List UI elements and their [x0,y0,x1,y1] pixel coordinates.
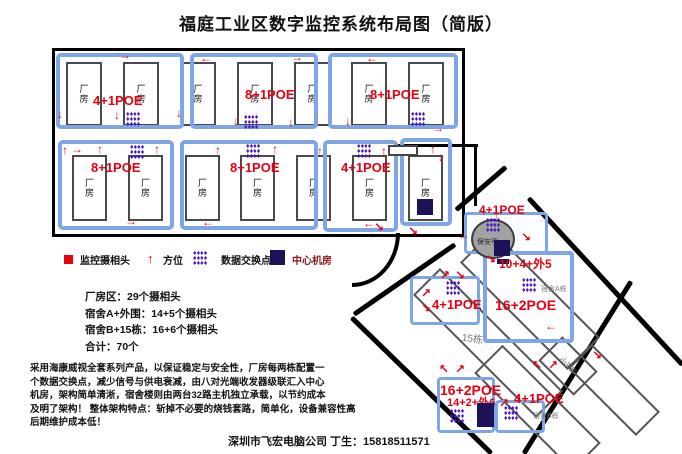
data-switch-icon: ♦♦♦♦ ♦♦♦♦ ♦♦♦♦ [450,409,464,424]
poe-label: 8+1POE [230,161,280,174]
data-switch-icon: ♦♦♦♦ ♦♦♦♦ ♦♦♦♦ [130,145,144,160]
direction-arrow-icon: ← [200,52,212,64]
description-line: 及明了架构！ 整体架构特点：斩掉不必要的烧钱套路，简单化，设备兼容性高 [30,403,356,417]
dorm-a-poe-label: 16+2POE [495,298,556,312]
data-switch-icon: ♦♦♦♦ ♦♦♦♦ ♦♦♦♦ [446,281,460,296]
legend-switch-label: 数据交换点 [221,252,271,267]
direction-arrow-icon: ↘ [455,269,465,281]
direction-arrow-icon: → [432,122,444,134]
legend-camera-label: 监控摄相头 [80,252,130,267]
direction-arrow-icon: ↘ [521,231,531,243]
data-switch-icon: ♦♦♦♦ ♦♦♦♦ ♦♦♦♦ [411,112,425,127]
direction-arrow-icon: ↖ [532,359,542,371]
direction-arrow-icon: ↓ [345,115,351,127]
direction-arrow-icon: ↓ [57,108,63,120]
small-structure [388,145,418,156]
server-room-icon [477,403,494,427]
direction-arrow-icon: → [119,49,131,61]
panel-row1-1 [56,53,184,129]
booth-poe-label: 4+1POE [479,204,525,216]
direction-arrow-icon: ↑ [147,252,154,265]
description-line: 采用海康威视全套系列产品，以保证稳定与安全性，厂房每两栋配置一 [30,362,356,376]
dorm-b-label: 宿舍B栋 [533,411,559,421]
server-room-icon [417,199,433,215]
data-switch-icon: ♦♦♦♦ ♦♦♦♦ ♦♦♦♦ [126,112,140,127]
direction-arrow-icon: ← [458,229,470,241]
monitoring-layout-diagram: 福庭工业区数字监控系统布局图（简版） 厂房 厂房 厂房 厂房 厂房 厂房 厂房 … [0,0,682,454]
direction-arrow-icon: ↑ [272,143,278,155]
direction-arrow-icon: ↗ [440,269,450,281]
description-paragraph: 采用海康威视全套系列产品，以保证稳定与安全性，厂房每两栋配置一 个数据交换点，减… [30,362,356,430]
direction-arrow-icon: ↑ [97,143,103,155]
stats-line: 宿舍A+外围：14+5个摄相头 [85,306,218,323]
legend-server-label: 中心机房 [292,252,332,267]
road-corner-curve [352,233,400,287]
poe-label: 4+1POE [341,161,391,174]
direction-arrow-icon: ↑ [154,143,160,155]
direction-arrow-icon: ↑ [381,145,387,157]
direction-arrow-icon: ↓ [114,109,120,121]
direction-arrow-icon: ↘ [592,349,602,361]
direction-arrow-icon: ↘ [486,253,496,265]
direction-arrow-icon: ↓ [233,115,239,127]
camera-icon [64,255,73,264]
direction-arrow-icon: → [291,51,303,63]
direction-arrow-icon: ↘ [408,225,418,237]
stats-line: 宿舍B+15栋：16+6个摄相头 [85,322,218,339]
direction-arrow-icon: ← [202,216,214,228]
building-15-label: 15栋 [461,329,484,347]
gate-poe-label: 4+1POE [432,298,482,311]
camera-stats: 厂房区：29个摄相头 宿舍A+外围：14+5个摄相头 宿舍B+15栋：16+6个… [85,289,218,355]
direction-arrow-icon: ↓ [288,116,294,128]
direction-arrow-icon: ↑ [62,144,68,156]
server-room-icon [494,240,510,256]
dorm-b-poe-label: 16+2POE [440,383,501,397]
direction-arrow-icon: ↑ [430,143,436,155]
stats-line: 合计：70个 [85,339,218,356]
direction-arrow-icon: ↑ [494,211,499,220]
direction-arrow-icon: ↗ [548,359,558,371]
poe-label: 4+1POE [93,94,143,107]
direction-arrow-icon: ↗ [421,287,431,299]
direction-arrow-icon: ↑ [317,145,323,157]
description-line: 机房，架构简单清淅，宿舍楼则由两台32路主机独立承载，以节约成本 [30,389,356,403]
legend-direction-label: 方位 [163,252,183,267]
page-title: 福庭工业区数字监控系统布局图（简版） [0,10,682,35]
direction-arrow-icon: ↘ [374,221,384,233]
data-switch-icon: ♦♦♦♦ ♦♦♦♦ ♦♦♦♦ [522,278,536,293]
data-switch-icon: ♦♦♦♦ ♦♦♦♦ ♦♦♦♦ [244,115,258,130]
dorm-b-gate-poe-label: 4+1POE [514,392,564,405]
data-switch-icon: ♦♦♦♦ ♦♦♦♦ ♦♦♦♦ [246,144,260,159]
dorm-a-label: 宿舍A栋 [541,284,567,294]
direction-arrow-icon: ↗ [499,397,509,409]
direction-arrow-icon: ← [366,52,378,64]
stats-line: 厂房区：29个摄相头 [85,289,218,306]
direction-arrow-icon: ↓ [176,107,182,119]
description-line: 个数据交换点，减少信号与供电衰减，由八对光端收发器级联汇入中心 [30,376,356,390]
direction-arrow-icon: ↖ [439,363,449,375]
direction-arrow-icon: → [125,215,137,227]
description-line: 后期维护成本低！ [30,416,356,430]
direction-arrow-icon: ← [545,320,557,332]
direction-arrow-icon: ↘ [421,302,431,314]
company-contact: 深圳市飞宏电脑公司 丁生：15818511571 [228,433,430,449]
poe-label: 8+1POE [370,88,420,101]
data-switch-icon: ♦♦♦♦ ♦♦♦♦ ♦♦♦♦ [193,251,207,266]
poe-label: 8+1POE [91,161,141,174]
direction-arrow-icon: → [71,143,83,155]
data-switch-icon: ♦♦♦♦ ♦♦♦♦ ♦♦♦♦ [486,218,500,233]
direction-arrow-icon: ↓ [438,151,444,163]
direction-arrow-icon: ↗ [455,363,465,375]
server-room-icon [270,250,285,265]
poe-label: 8+1POE [245,88,295,101]
data-switch-icon: ♦♦♦♦ ♦♦♦♦ ♦♦♦♦ [357,144,371,159]
direction-arrow-icon: ↑ [215,144,221,156]
dorm-a-count-label: 10+4+外5 [499,258,552,270]
